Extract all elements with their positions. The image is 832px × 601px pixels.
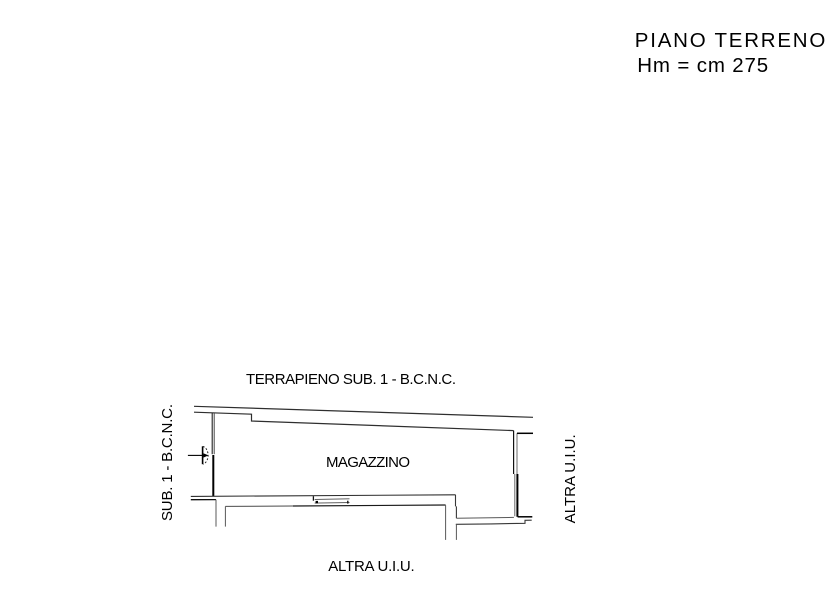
svg-text:Hm = cm 275: Hm = cm 275 [637,54,768,77]
svg-text:MAGAZZINO: MAGAZZINO [326,454,410,471]
svg-text:PIANO TERRENO: PIANO TERRENO [635,29,826,52]
svg-text:TERRAPIENO SUB. 1 - B.C.N.C.: TERRAPIENO SUB. 1 - B.C.N.C. [246,371,456,388]
svg-text:ALTRA U.I.U.: ALTRA U.I.U. [328,558,415,575]
svg-text:ALTRA U.I.U.: ALTRA U.I.U. [562,434,579,523]
svg-text:SUB. 1 - B.C.N.C.: SUB. 1 - B.C.N.C. [159,404,176,521]
